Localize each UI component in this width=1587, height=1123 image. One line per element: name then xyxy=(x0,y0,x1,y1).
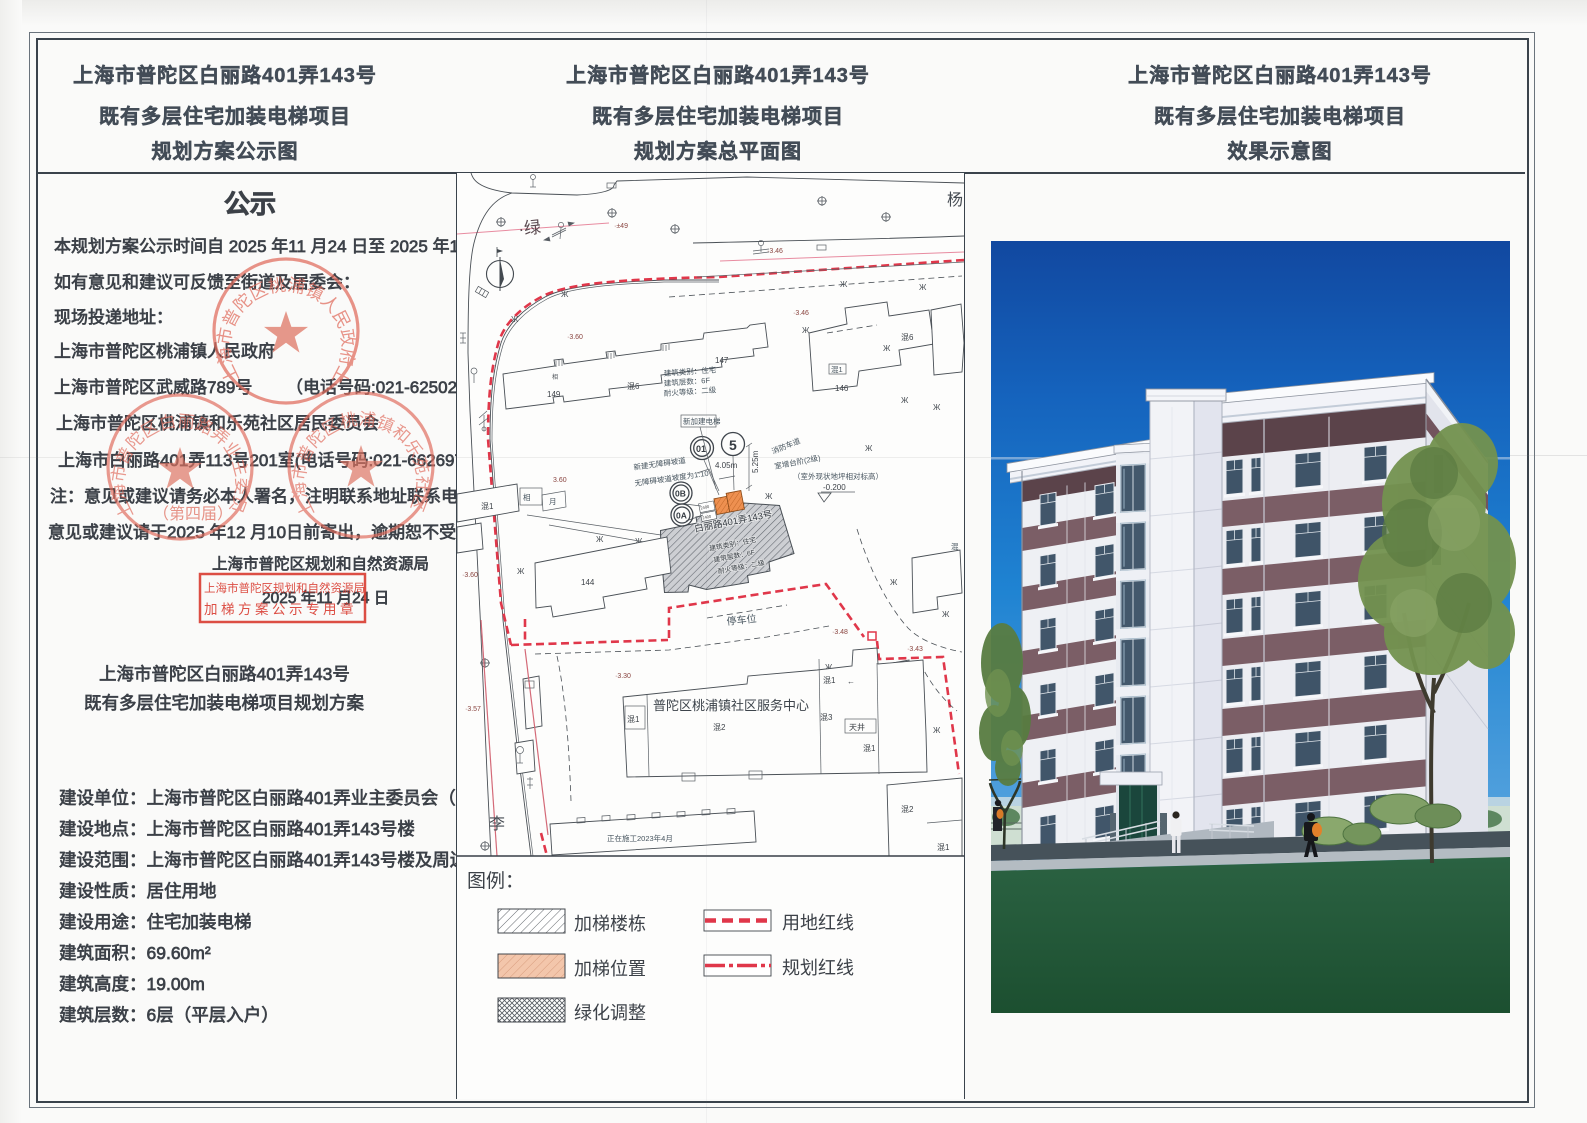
svg-text:加梯楼栋: 加梯楼栋 xyxy=(574,914,646,934)
svg-text:144: 144 xyxy=(581,578,595,587)
svg-text:混1: 混1 xyxy=(823,676,836,685)
svg-text:Ж: Ж xyxy=(802,326,810,335)
svg-text:·3.57: ·3.57 xyxy=(465,706,481,713)
svg-text:·3.30: ·3.30 xyxy=(615,673,631,680)
svg-text:Ж: Ж xyxy=(765,492,773,501)
svg-text:上海市普陀区桃浦镇人民政府上海市: 上海市普陀区桃浦镇人民政府上海市 xyxy=(37,174,358,388)
svg-text:混2: 混2 xyxy=(901,805,914,814)
svg-text:Ж: Ж xyxy=(596,535,604,544)
svg-text:·3.46: ·3.46 xyxy=(767,248,783,255)
svg-text:Ж: Ж xyxy=(901,396,909,405)
svg-text:混1: 混1 xyxy=(937,843,950,852)
svg-text:Ж: Ж xyxy=(890,578,898,587)
svg-text:·绿: ·绿 xyxy=(517,218,542,239)
svg-text:混1: 混1 xyxy=(863,744,876,753)
svg-text:规划红线: 规划红线 xyxy=(782,958,854,978)
svg-text:5.25m: 5.25m xyxy=(751,450,760,473)
svg-text:（第四届）: （第四届） xyxy=(153,505,233,523)
svg-text:混6: 混6 xyxy=(627,382,640,391)
svg-text:Ж: Ж xyxy=(517,567,525,576)
svg-text:Ж: Ж xyxy=(561,290,569,299)
svg-text:146: 146 xyxy=(835,384,849,393)
svg-text:149: 149 xyxy=(547,390,561,399)
svg-text:Ж: Ж xyxy=(933,403,941,412)
svg-text:混: 混 xyxy=(951,542,959,551)
svg-text:·3.46: ·3.46 xyxy=(793,310,809,317)
svg-text:加梯方案公示专用章: 加梯方案公示专用章 xyxy=(204,601,357,617)
svg-text:·3.43: ·3.43 xyxy=(907,646,923,653)
svg-text:-0.200: -0.200 xyxy=(823,483,846,492)
svg-text:Ж: Ж xyxy=(865,444,873,453)
svg-text:·3.60: ·3.60 xyxy=(567,334,583,341)
svg-text:混2: 混2 xyxy=(713,723,726,732)
svg-text:用地红线: 用地红线 xyxy=(782,913,854,933)
svg-text:图例：: 图例： xyxy=(467,870,524,892)
svg-text:混1: 混1 xyxy=(627,715,640,724)
svg-text:Ж: Ж xyxy=(942,610,950,619)
svg-text:0A: 0A xyxy=(676,511,687,521)
svg-text:绿化调整: 绿化调整 xyxy=(574,1003,646,1023)
svg-text:加梯位置: 加梯位置 xyxy=(574,959,646,979)
svg-text:·±49: ·±49 xyxy=(614,223,628,230)
svg-text:杨: 杨 xyxy=(947,191,963,209)
svg-text:李: 李 xyxy=(489,815,505,833)
svg-text:147: 147 xyxy=(715,356,729,365)
svg-text:天井: 天井 xyxy=(849,722,865,732)
svg-text:（室外现状地坪相对标高）: （室外现状地坪相对标高） xyxy=(793,471,883,481)
svg-text:Ж: Ж xyxy=(933,726,941,735)
svg-text:相: 相 xyxy=(552,373,558,381)
svg-text:混1: 混1 xyxy=(831,365,843,374)
svg-text:上海市普陀区规划和自然资源局: 上海市普陀区规划和自然资源局 xyxy=(204,581,365,595)
svg-text:4.05m: 4.05m xyxy=(715,461,738,470)
svg-text:普陀区桃浦镇社区服务中心: 普陀区桃浦镇社区服务中心 xyxy=(653,698,809,713)
svg-text:正在施工2023年4月: 正在施工2023年4月 xyxy=(607,833,673,843)
svg-text:←: ← xyxy=(847,677,855,686)
svg-text:混6: 混6 xyxy=(901,333,914,342)
svg-text:混1: 混1 xyxy=(481,502,494,511)
svg-text:·3.60: ·3.60 xyxy=(462,572,478,579)
svg-text:Ж: Ж xyxy=(883,344,891,353)
svg-text:5: 5 xyxy=(729,437,737,453)
svg-text:0B: 0B xyxy=(675,489,686,499)
svg-text:相: 相 xyxy=(523,492,531,502)
svg-text:Ж: Ж xyxy=(840,280,848,289)
svg-text:新加建电梯: 新加建电梯 xyxy=(683,416,721,426)
svg-text:3.60: 3.60 xyxy=(553,477,567,484)
svg-text:Ж: Ж xyxy=(919,283,927,292)
svg-text:混3: 混3 xyxy=(820,713,833,722)
svg-text:Ж: Ж xyxy=(511,315,519,324)
svg-text:·3.48: ·3.48 xyxy=(832,629,848,636)
svg-text:月: 月 xyxy=(549,497,557,506)
